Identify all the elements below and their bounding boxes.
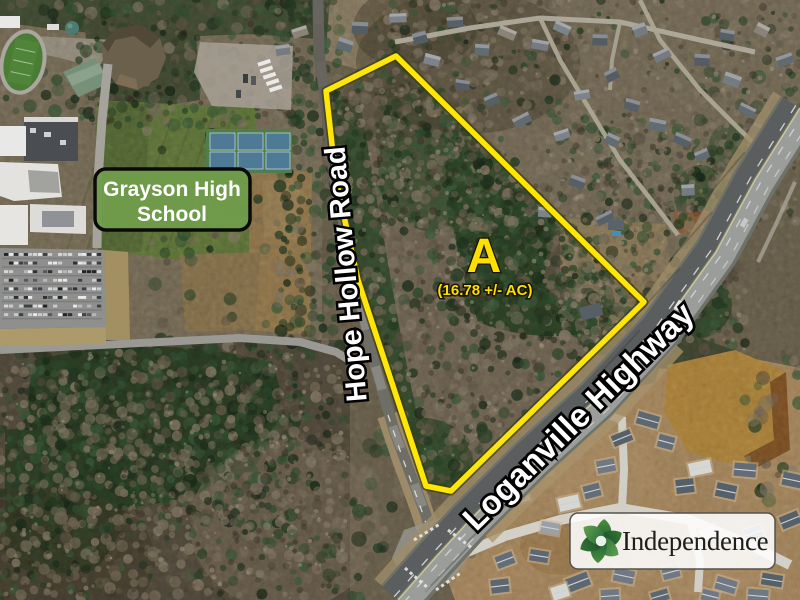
svg-text:Independence: Independence: [622, 526, 769, 556]
svg-text:(16.78 +/- AC): (16.78 +/- AC): [438, 282, 533, 299]
svg-text:Grayson High: Grayson High: [103, 178, 241, 201]
svg-text:School: School: [137, 203, 207, 226]
svg-text:A: A: [467, 230, 502, 283]
